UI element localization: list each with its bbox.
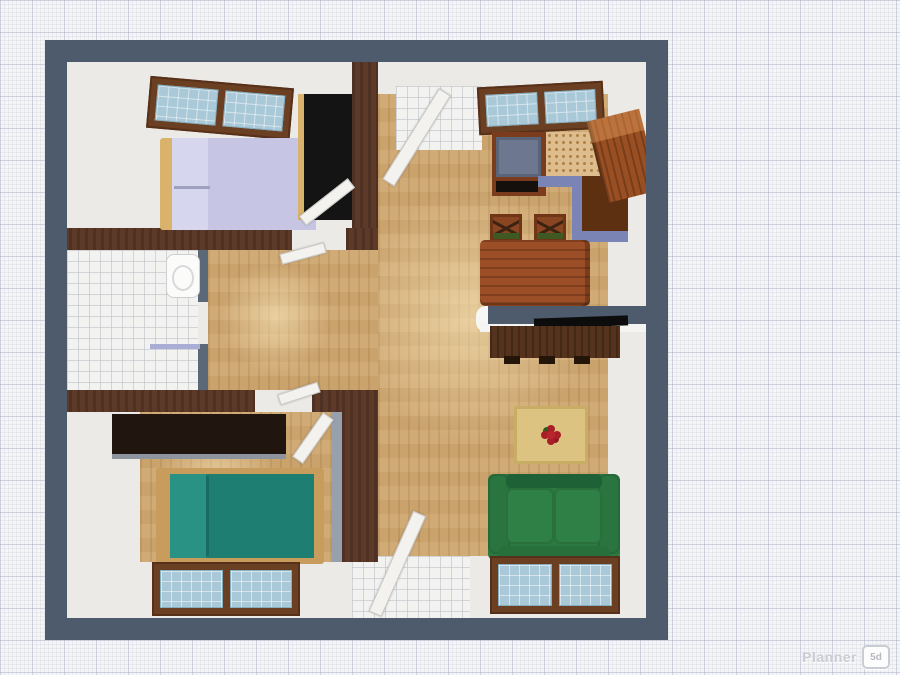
wall-bedroom2-top[interactable] — [45, 390, 255, 412]
kitchen-window[interactable] — [477, 81, 605, 136]
blanket-fold — [174, 186, 210, 189]
wall-outer-top[interactable] — [45, 40, 668, 62]
window-pane — [544, 89, 597, 124]
window-mullion — [552, 564, 559, 606]
window-pane — [160, 570, 223, 608]
sofa-cushion — [506, 488, 554, 544]
living-room-window[interactable] — [490, 556, 620, 614]
window-pane — [230, 570, 293, 608]
wall-bedroom1-bottom[interactable] — [45, 228, 292, 250]
window-pane — [559, 564, 613, 606]
sofa[interactable] — [488, 474, 620, 560]
single-bed-pillow — [170, 474, 206, 558]
stove-front — [496, 181, 538, 192]
chair-seat — [537, 233, 563, 239]
mattress-fold — [206, 476, 209, 556]
chair-seat — [493, 233, 519, 239]
tv-stand-leg — [539, 356, 555, 364]
window-pane — [485, 92, 538, 127]
rug-flower — [547, 431, 555, 439]
window-mullion — [223, 570, 230, 608]
bedroom2-window[interactable] — [152, 562, 300, 616]
towel-rail[interactable] — [150, 344, 200, 349]
tv-stand-leg — [574, 356, 590, 364]
wall-outer-left[interactable] — [45, 40, 67, 640]
wall-bedroom1-right[interactable] — [352, 62, 378, 228]
watermark-logo-badge: 5d — [862, 645, 890, 669]
rug[interactable] — [514, 406, 588, 464]
hallway-floor[interactable] — [208, 250, 378, 390]
double-bed-pillow — [172, 138, 208, 230]
wall-shelf[interactable] — [112, 414, 286, 456]
tv-stand-leg — [504, 356, 520, 364]
window-pane — [155, 84, 218, 125]
tv-stand[interactable] — [490, 326, 620, 358]
wall-bathroom-right-lower[interactable] — [198, 344, 208, 390]
dining-table[interactable] — [480, 240, 590, 306]
wall-bedroom2-right-edge — [332, 412, 342, 562]
wall-bedroom1-bottom-stub[interactable] — [346, 228, 378, 250]
dining-chair[interactable] — [490, 214, 522, 242]
toilet[interactable] — [166, 254, 200, 298]
wall-outer-right[interactable] — [646, 40, 668, 640]
window-pane — [222, 90, 285, 131]
sofa-cushion — [554, 488, 602, 544]
planner-canvas: Planner 5d — [0, 0, 900, 675]
wall-shelf-edge — [112, 454, 286, 459]
window-pane — [498, 564, 552, 606]
watermark: Planner 5d — [802, 645, 890, 669]
dining-chair[interactable] — [534, 214, 566, 242]
stove-cooktop — [496, 137, 541, 177]
watermark-text: Planner — [802, 649, 857, 665]
wall-outer-bottom[interactable] — [45, 618, 668, 640]
sofa-back — [506, 474, 602, 488]
wall-bedroom2-right[interactable] — [342, 390, 378, 562]
